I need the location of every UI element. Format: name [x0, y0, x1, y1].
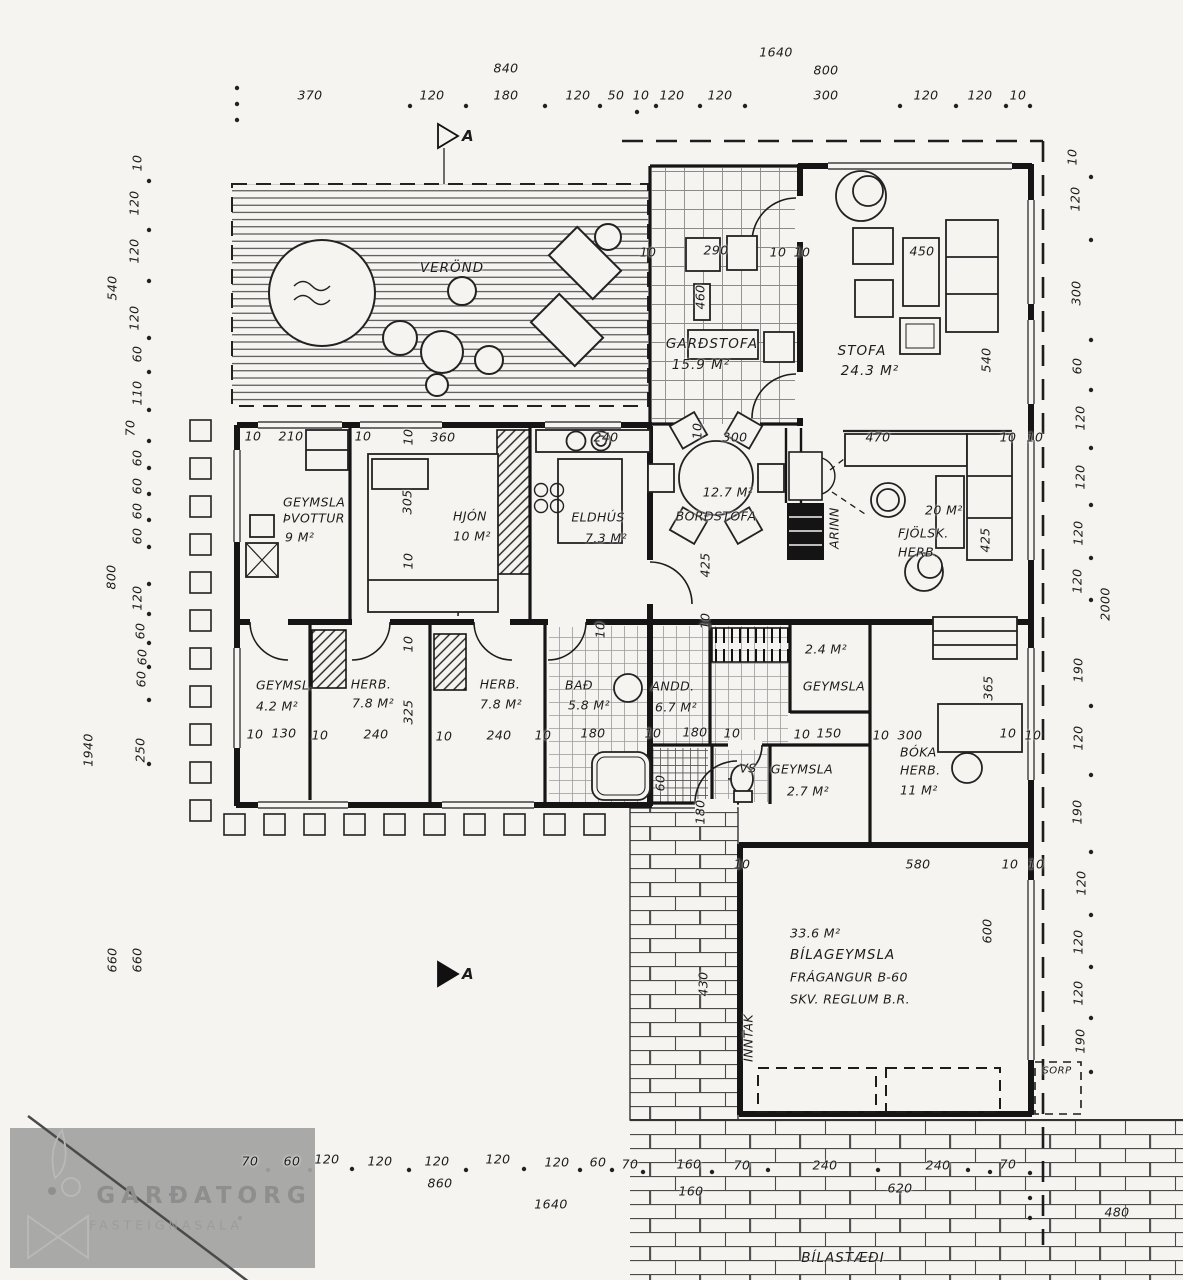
- dim: 60: [1070, 358, 1085, 375]
- dim: 10: [770, 245, 787, 260]
- dim: 120: [1068, 186, 1083, 211]
- dim: 300: [897, 728, 922, 743]
- dim: 460: [693, 284, 708, 309]
- dim: 110: [130, 380, 145, 405]
- dim: 150: [816, 726, 841, 741]
- watermark-brand: GARÐATORG: [96, 1183, 312, 1209]
- dim: 10: [401, 429, 416, 446]
- paving: [630, 808, 1183, 1280]
- dim: 210: [278, 429, 303, 444]
- dim: 250: [133, 737, 148, 762]
- room-label-stofa: STOFA: [838, 343, 887, 359]
- dim: 290: [703, 243, 728, 258]
- dim: 120: [913, 88, 938, 103]
- label-inntak: INNTAK: [741, 1014, 756, 1062]
- dim: 660: [130, 947, 145, 972]
- dim: 10: [873, 728, 890, 743]
- dim: 120: [1074, 870, 1089, 895]
- dim: 60: [284, 1154, 301, 1169]
- dim: 10: [724, 726, 741, 741]
- dim: 120: [485, 1152, 510, 1167]
- dim: 300: [813, 88, 838, 103]
- dim: 240: [486, 728, 511, 743]
- dim: 240: [593, 430, 618, 445]
- garage-note1: FRÁGANGUR B-60: [790, 970, 908, 985]
- room-area-bordstofa: 12.7 M²: [703, 485, 753, 500]
- room-area-hjon: 10 M²: [453, 529, 491, 544]
- room-area-geymsla24: 2.4 M²: [805, 642, 847, 657]
- dim: 60: [135, 649, 150, 666]
- dim: 1640: [534, 1197, 567, 1212]
- dim: 120: [367, 1154, 392, 1169]
- dim: 60: [590, 1155, 607, 1170]
- dim: 130: [271, 726, 296, 741]
- dim: 10: [794, 245, 811, 260]
- room-label-herb2: HERB.: [480, 677, 521, 692]
- garage-note2: SKV. REGLUM B.R.: [790, 992, 910, 1007]
- dim: 60: [134, 671, 149, 688]
- room-label-andd: ANDD.: [651, 679, 694, 694]
- basin: [614, 674, 642, 702]
- dim: 10: [1010, 88, 1027, 103]
- dim: 120: [419, 88, 444, 103]
- room-label-geymsla27: GEYMSLA: [771, 762, 833, 777]
- dim: 300: [1069, 280, 1084, 305]
- dim: 120: [1073, 464, 1088, 489]
- dim: 2000: [1098, 587, 1113, 620]
- dim: 450: [909, 244, 934, 259]
- room-label-verond: VERÖND: [420, 260, 484, 276]
- floorplan-page: 370 120 840 180 120 50 10 120 120 1640 8…: [0, 0, 1183, 1280]
- desk-chair: [952, 753, 982, 783]
- room-label-geymsl: GEYMSL.: [256, 678, 314, 693]
- dim: 10: [690, 423, 705, 440]
- room-area-herb1: 7.8 M²: [352, 696, 394, 711]
- dim: 60: [130, 478, 145, 495]
- section-marker-top: [438, 124, 458, 148]
- room-label-fjolsk: FJÖLSK.: [898, 526, 949, 541]
- room-label-bordstofa: BORÐSTOFA: [676, 509, 757, 524]
- dim: 120: [1071, 725, 1086, 750]
- room-area-boka: 11 M²: [900, 783, 938, 798]
- dim: 160: [678, 1184, 703, 1199]
- dim: 160: [676, 1157, 701, 1172]
- dim: 480: [1104, 1205, 1129, 1220]
- room-area-geymsla27: 2.7 M²: [787, 784, 829, 799]
- room-area-fjolsk: 20 M²: [925, 503, 963, 518]
- dim: 120: [127, 190, 142, 215]
- dim: 120: [1073, 405, 1088, 430]
- room-area-geymsla-thvottur: 9 M²: [285, 530, 314, 545]
- floorplan-drawing: [0, 0, 1183, 1280]
- dim: 70: [1000, 1157, 1017, 1172]
- watermark-tagline: FASTEIGNASALA: [89, 1218, 243, 1233]
- dim: 1640: [759, 45, 792, 60]
- dim: 10: [436, 729, 453, 744]
- dim: 190: [1070, 799, 1085, 824]
- dim: 840: [493, 61, 518, 76]
- room-label-geymsla-thvottur: GEYMSLA: [283, 495, 345, 510]
- room-area-geymsl: 4.2 M²: [256, 699, 298, 714]
- room-area-andd: 6.7 M²: [655, 700, 697, 715]
- room-label-garage: BÍLAGEYMSLA: [790, 947, 895, 963]
- room-label-hjon: HJÓN: [453, 509, 487, 524]
- dim: 580: [905, 857, 930, 872]
- dim: 120: [127, 238, 142, 263]
- label-bilastaedi: BÍLASTÆÐI: [801, 1250, 884, 1266]
- dim: 365: [981, 675, 996, 700]
- dim: 10: [130, 155, 145, 172]
- dim: 1940: [81, 733, 96, 766]
- dim: 120: [314, 1152, 339, 1167]
- dim: 240: [812, 1158, 837, 1173]
- dim: 470: [865, 430, 890, 445]
- dim: 430: [696, 971, 711, 996]
- room-area-herb2: 7.8 M²: [480, 697, 522, 712]
- dim: 60: [130, 503, 145, 520]
- dim: 10: [645, 726, 662, 741]
- dim: 190: [1071, 657, 1086, 682]
- dim: 10: [1028, 857, 1045, 872]
- dim: 10: [535, 728, 552, 743]
- sink: [567, 432, 586, 451]
- dim: 10: [247, 727, 264, 742]
- dim: 860: [427, 1176, 452, 1191]
- dim: 70: [123, 420, 138, 437]
- dim: 10: [312, 728, 329, 743]
- dim: 120: [424, 1154, 449, 1169]
- dim: 120: [659, 88, 684, 103]
- room-label-boka: BÓKA: [900, 745, 937, 760]
- dim: 240: [925, 1158, 950, 1173]
- dim: 10: [1065, 149, 1080, 166]
- dim: 120: [1071, 929, 1086, 954]
- room-area-garage: 33.6 M²: [790, 926, 840, 941]
- dim: 120: [1071, 520, 1086, 545]
- room-label-thvottur: ÞVOTTUR: [283, 511, 345, 526]
- dim: 325: [401, 699, 416, 724]
- dim: 10: [633, 88, 650, 103]
- sofa: [946, 220, 998, 332]
- label-sorp: SORP: [1042, 1066, 1071, 1077]
- dim: 60: [130, 528, 145, 545]
- dim: 190: [1073, 1028, 1088, 1053]
- room-label-herb1: HERB.: [351, 677, 392, 692]
- dim: 360: [430, 430, 455, 445]
- dim: 600: [980, 918, 995, 943]
- dim: 70: [242, 1154, 259, 1169]
- dim: 240: [363, 727, 388, 742]
- daybed: [933, 617, 1017, 659]
- room-area-gardstofa: 15.9 M²: [672, 357, 730, 373]
- dim: 60: [130, 450, 145, 467]
- dim: 10: [401, 636, 416, 653]
- dim: 10: [734, 857, 751, 872]
- dim: 10: [640, 245, 657, 260]
- dim: 60: [133, 623, 148, 640]
- dim: 50: [608, 88, 625, 103]
- dim: 370: [297, 88, 322, 103]
- dim: 120: [127, 305, 142, 330]
- room-area-stofa: 24.3 M²: [841, 363, 899, 379]
- dim: 620: [887, 1181, 912, 1196]
- dim: 10: [1025, 728, 1042, 743]
- dim: 120: [1070, 568, 1085, 593]
- dim: 120: [967, 88, 992, 103]
- dim: 10: [1002, 857, 1019, 872]
- dim: 10: [401, 553, 416, 570]
- dim: 10: [245, 429, 262, 444]
- room-label-boka-herb: HERB.: [900, 763, 941, 778]
- dim: 10: [593, 622, 608, 639]
- dim: 10: [1027, 430, 1044, 445]
- dining-table: [679, 441, 753, 515]
- section-marker-bottom: [438, 962, 458, 986]
- dim: 10: [355, 429, 372, 444]
- dim: 120: [544, 1155, 569, 1170]
- dim: 800: [813, 63, 838, 78]
- dim: 10: [1000, 430, 1017, 445]
- dim: 120: [130, 585, 145, 610]
- room-label-arinn: ARINN: [827, 507, 842, 549]
- room-label-bad: BAÐ: [565, 678, 593, 693]
- dim: 425: [698, 552, 713, 577]
- garage-doors: [758, 1068, 1000, 1112]
- dim: 540: [105, 275, 120, 300]
- dim: 10: [794, 727, 811, 742]
- room-area-eldhus: 7.3 M²: [585, 531, 627, 546]
- section-letter-bottom: A: [462, 965, 474, 983]
- sofa: [845, 434, 967, 466]
- room-label-geymsla24: GEYMSLA: [803, 679, 865, 694]
- dim: 60: [130, 346, 145, 363]
- dim: 120: [565, 88, 590, 103]
- room-area-bad: 5.8 M²: [568, 698, 610, 713]
- dim: 305: [400, 489, 415, 514]
- room-label-gardstofa: GARÐSTOFA: [666, 336, 758, 352]
- dim: 120: [707, 88, 732, 103]
- coat-rack: [712, 628, 790, 662]
- dim: 60: [653, 775, 668, 792]
- dim: 120: [1071, 980, 1086, 1005]
- deck: [232, 184, 648, 406]
- dim: 660: [105, 947, 120, 972]
- room-label-fjolsk-herb: HERB.: [898, 545, 939, 560]
- dim: 10: [1000, 726, 1017, 741]
- room-label-eldhus: ELDHÚS: [571, 510, 624, 525]
- deck-table: [269, 240, 375, 346]
- dim: 70: [734, 1158, 751, 1173]
- dim: 180: [580, 726, 605, 741]
- dim: 180: [493, 88, 518, 103]
- room-label-vs: VS: [739, 761, 756, 776]
- dim: 800: [104, 564, 119, 589]
- dim: 540: [979, 347, 994, 372]
- dim: 180: [682, 725, 707, 740]
- dim: 300: [722, 430, 747, 445]
- dim: 10: [698, 613, 713, 630]
- section-letter-top: A: [462, 127, 474, 145]
- dim: 70: [622, 1157, 639, 1172]
- dim: 425: [978, 527, 993, 552]
- dim: 180: [693, 799, 708, 824]
